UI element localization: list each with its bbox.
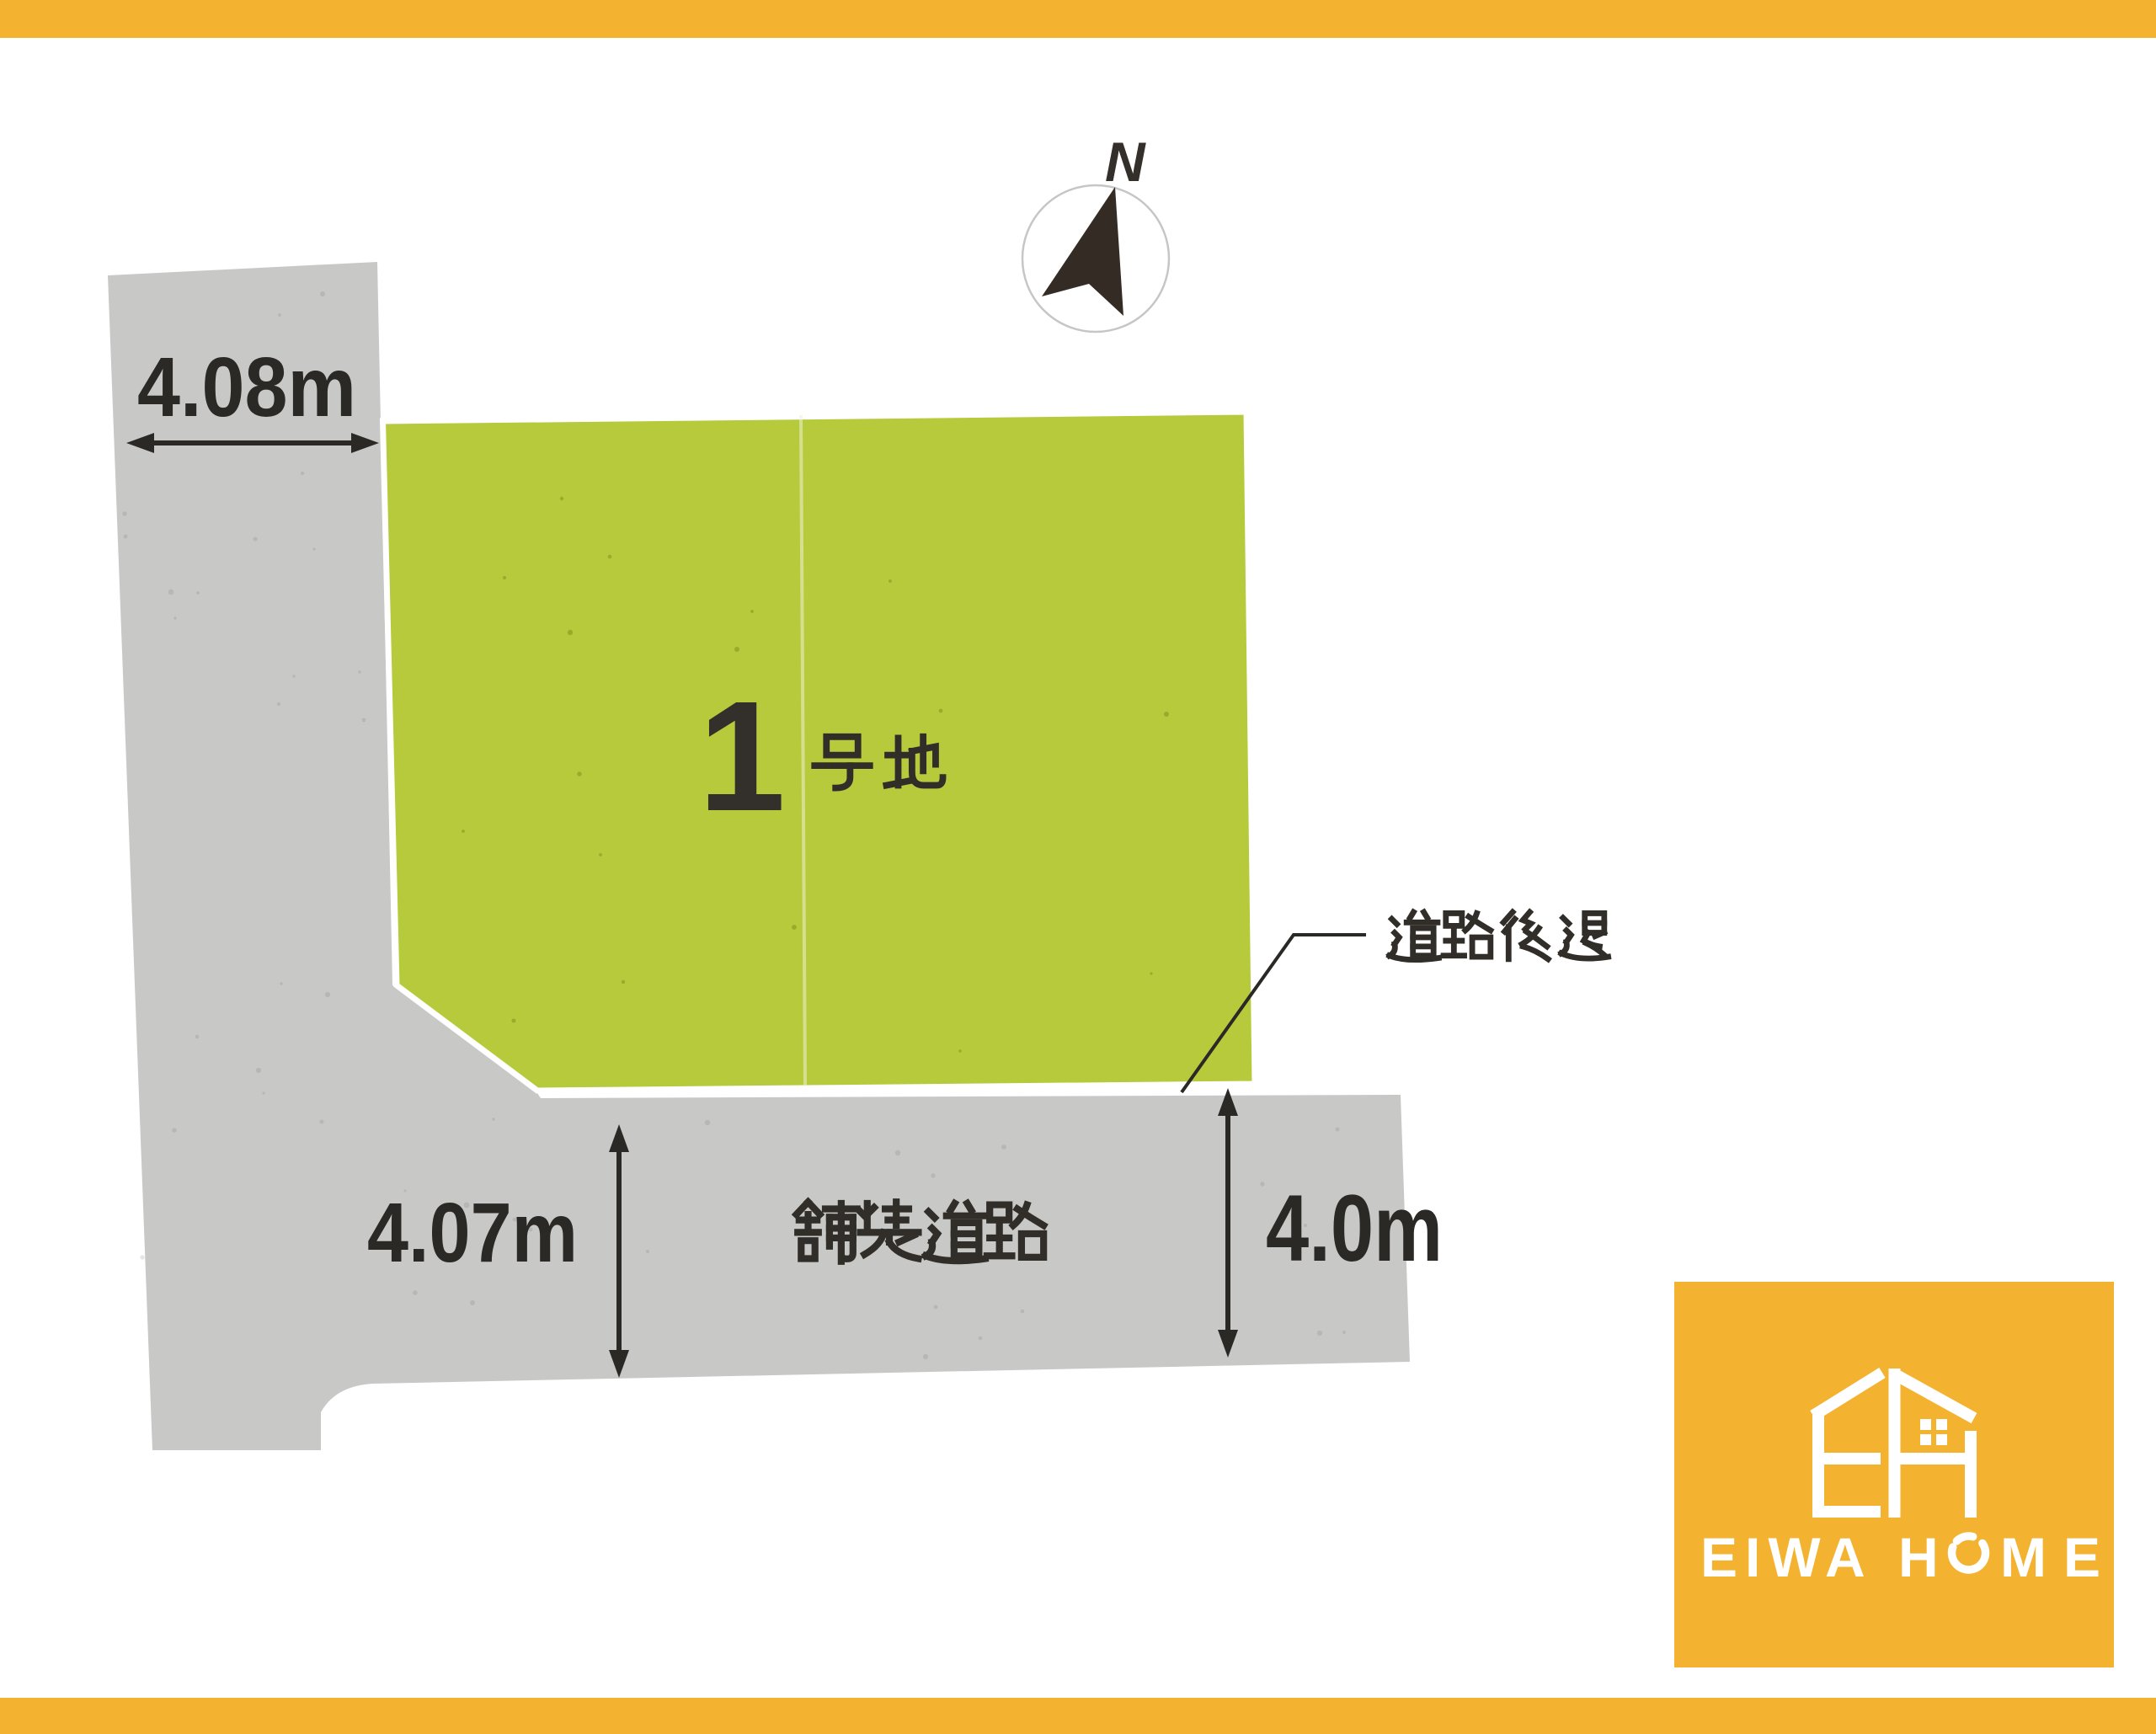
svg-text:4.0m: 4.0m <box>1266 1176 1443 1281</box>
svg-text:N: N <box>1105 131 1146 193</box>
svg-text:4.08m: 4.08m <box>137 340 356 435</box>
svg-text:H: H <box>1898 1526 1939 1588</box>
svg-text:M: M <box>2000 1526 2047 1588</box>
svg-text:1: 1 <box>698 670 785 844</box>
svg-text:4.07m: 4.07m <box>367 1186 578 1280</box>
svg-text:E: E <box>2063 1526 2100 1588</box>
svg-text:EIWA: EIWA <box>1700 1526 1873 1588</box>
